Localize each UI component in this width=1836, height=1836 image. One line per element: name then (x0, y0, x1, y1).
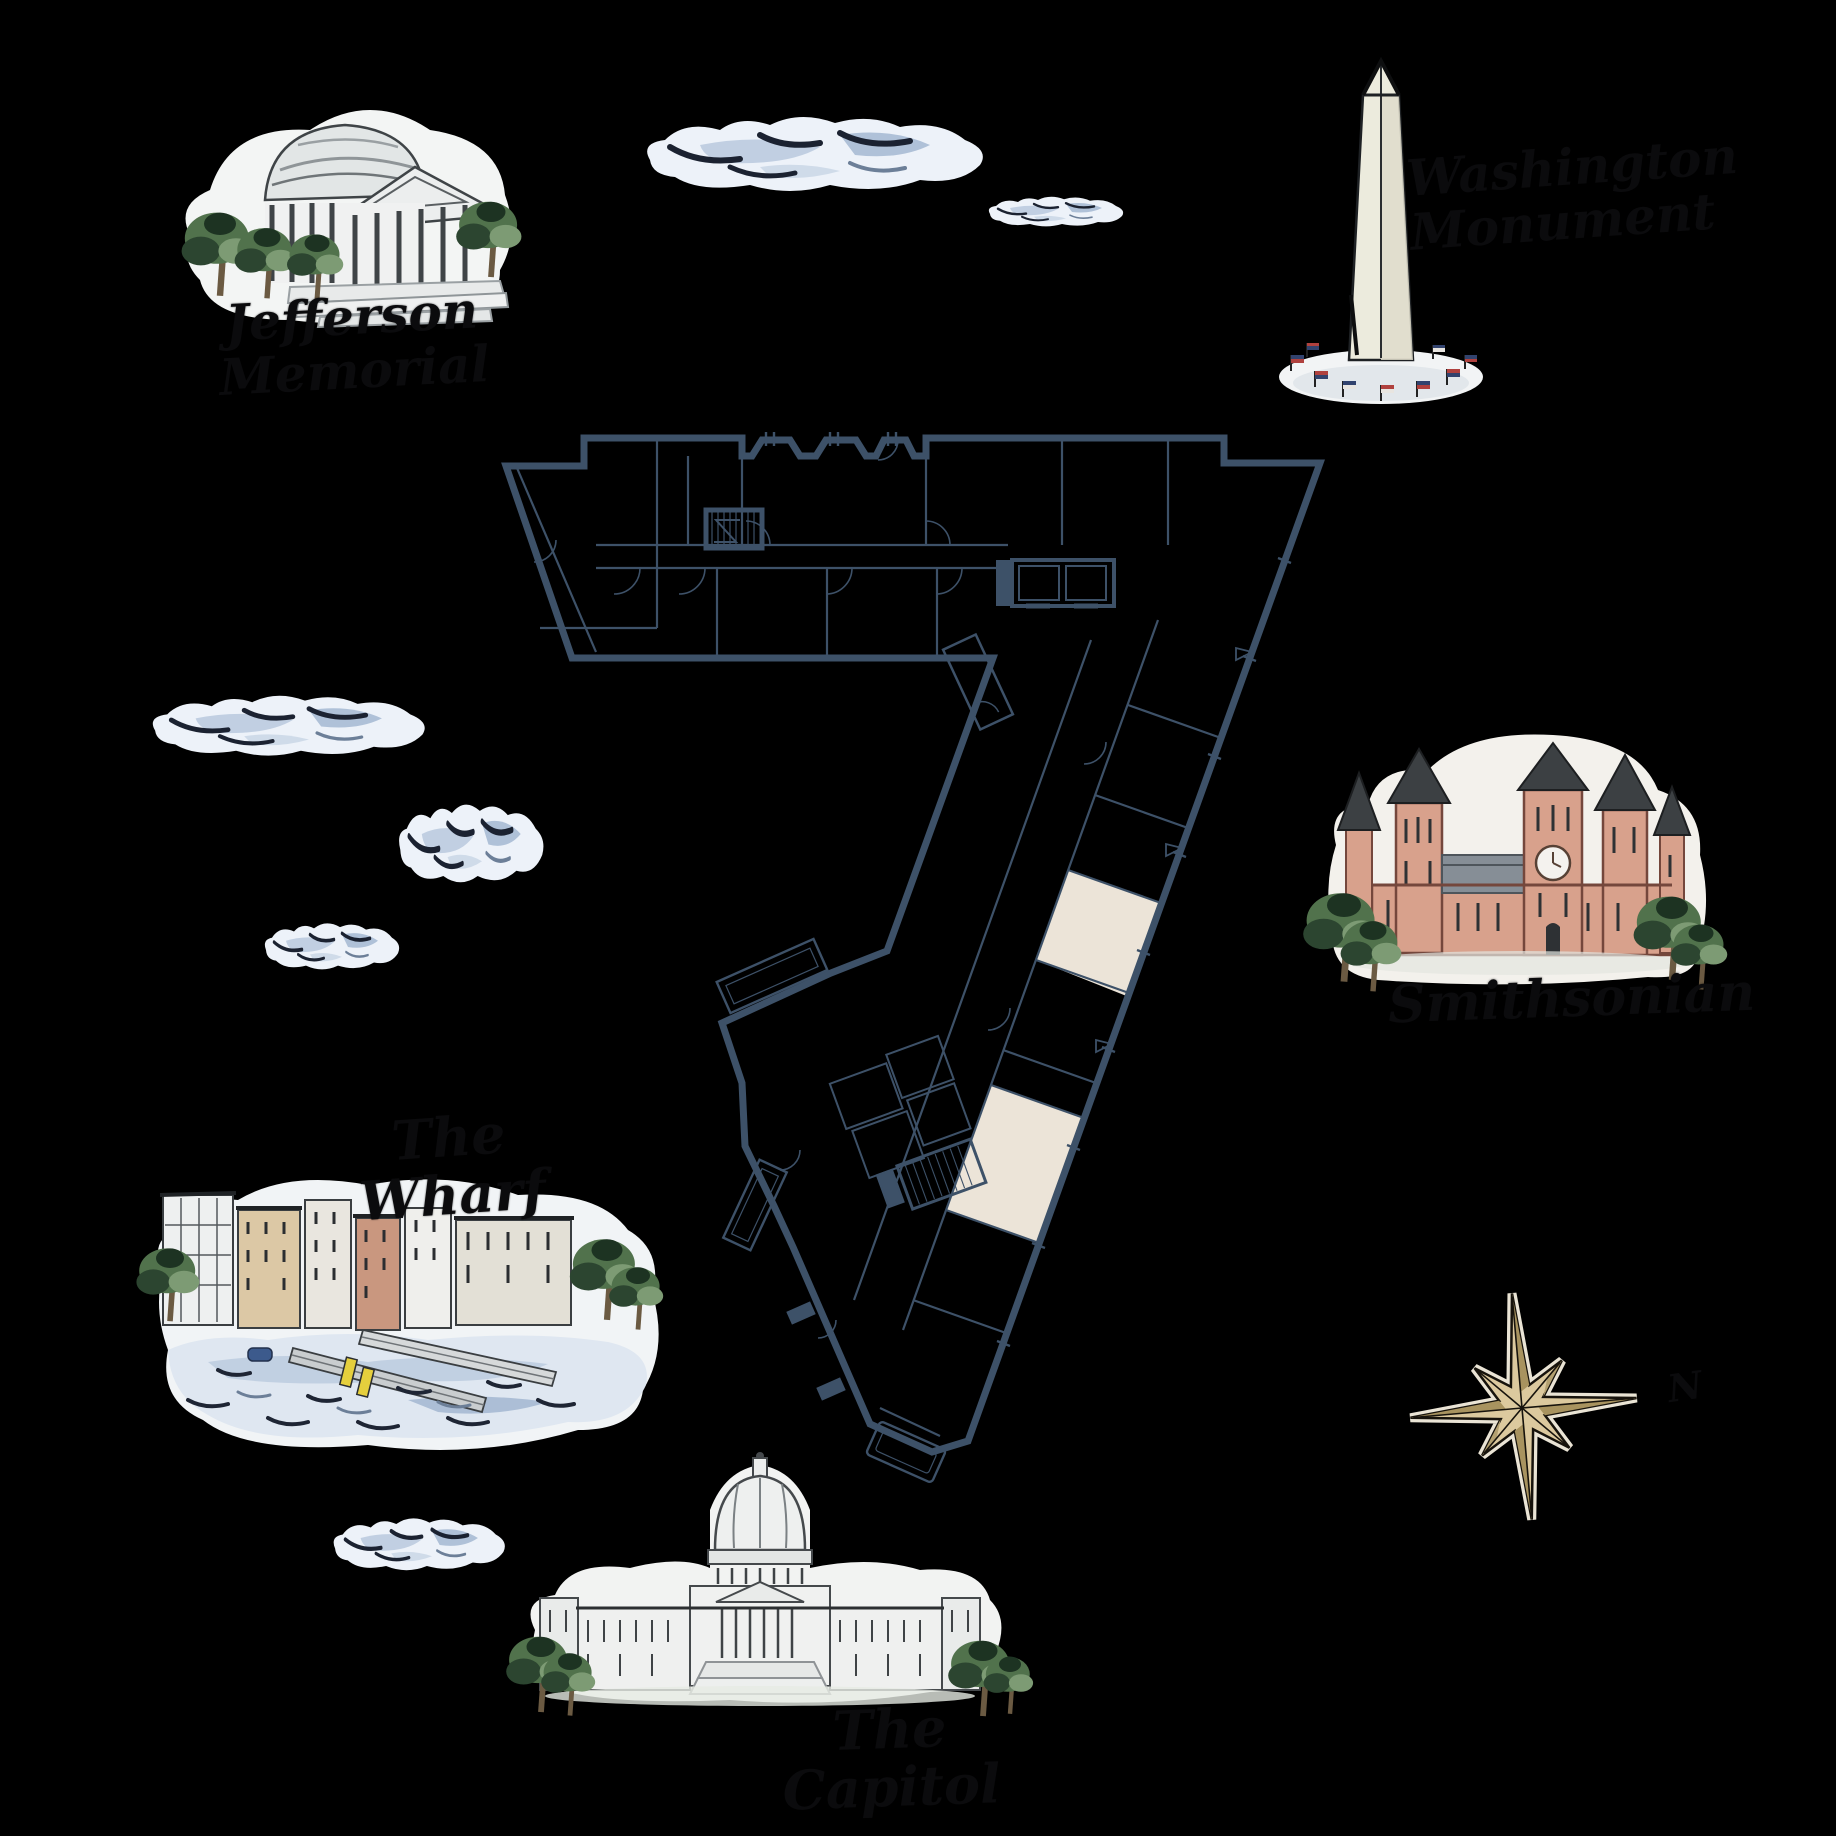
cloud-icon (153, 696, 425, 756)
highlighted-suite (1036, 870, 1161, 997)
map-artwork (0, 0, 1836, 1836)
cloud-icon (399, 805, 543, 883)
elevator-core (996, 560, 1114, 606)
washington-monument-label: Washington Monument (1405, 128, 1752, 259)
balcony (717, 939, 947, 1483)
compass-star-icon (1400, 1283, 1646, 1529)
smithsonian-label: Smithsonian (1387, 967, 1704, 1034)
smithsonian-illustration (1303, 734, 1727, 991)
capitol-label: The Capitol (726, 1694, 1055, 1822)
cloud-icon (265, 923, 399, 969)
cloud-icon (989, 197, 1123, 227)
highlighted-suite (946, 1085, 1084, 1243)
stair-core (706, 510, 762, 548)
cloud-icon (334, 1518, 505, 1570)
capitol-illustration (506, 1452, 1033, 1716)
dc-map-canvas: Jefferson Memorial Washington Monument S… (0, 0, 1836, 1836)
wharf-label: The Wharf (294, 1098, 606, 1236)
vestibule (943, 635, 1013, 730)
cloud-icon (647, 117, 983, 191)
